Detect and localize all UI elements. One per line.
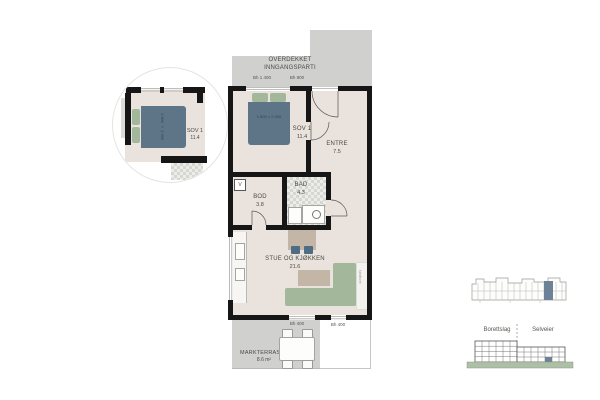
bed-size-label: 1 600 × 2 000 xyxy=(248,114,290,119)
floorplan-canvas: OVERDEKKET INNGANGSPARTI Bh 1 400 Bh 800… xyxy=(0,0,600,400)
sofa-chaise xyxy=(333,263,356,306)
bathroom-toilet xyxy=(288,207,302,224)
detail-room-name: SOV 1 xyxy=(175,128,215,135)
wall-sov1-bottom xyxy=(228,172,331,177)
covered-entrance-label: OVERDEKKET INNGANGSPARTI xyxy=(240,57,340,73)
sill-height-label-entrance-left: Bh 1 400 xyxy=(244,75,280,80)
bed-pillow xyxy=(270,93,286,102)
wall xyxy=(197,87,203,103)
covered-entrance-line2: INNGANGSPARTI xyxy=(240,65,340,73)
bad-name: BAD xyxy=(286,182,316,190)
bathroom-washer xyxy=(302,205,325,224)
elevation-unit-highlight xyxy=(545,357,552,362)
entre-name: ENTRE xyxy=(317,141,357,149)
bod-name: BOD xyxy=(242,194,278,202)
site-plan-unit-highlight xyxy=(544,281,553,300)
stue-area: 21.6 xyxy=(255,264,335,271)
wall xyxy=(346,315,372,320)
detail-tiles xyxy=(171,163,203,180)
neighbor-terrace-outline xyxy=(320,320,371,369)
wall xyxy=(228,315,289,320)
wall-bad-entre xyxy=(326,177,331,200)
vent-unit: V xyxy=(234,179,246,191)
coffee-table xyxy=(298,270,330,286)
room-label-entre: ENTRE 7.5 xyxy=(317,141,357,156)
dining-chair xyxy=(291,246,300,254)
wall xyxy=(125,93,131,145)
detail-room-area: 11.4 xyxy=(175,135,215,142)
washer-drum-icon xyxy=(312,210,321,219)
room-label-sov1: SOV 1 11.4 xyxy=(282,126,322,141)
outdoor-chair xyxy=(302,360,313,369)
outdoor-chair xyxy=(282,360,293,369)
section-label-borettslag: Borettslag xyxy=(475,327,519,333)
wall xyxy=(367,86,372,320)
wall-sov1-entre xyxy=(306,91,311,122)
dining-chair xyxy=(304,246,313,254)
detail-bed: 1 600 × 2 000 xyxy=(141,106,186,148)
site-plan-mini xyxy=(470,272,570,306)
sill-height-label-terrace-right: Bh 400 xyxy=(324,322,352,327)
wall-note-vertical: Nedforet xyxy=(358,270,362,306)
kitchen-sink xyxy=(235,243,245,260)
wall xyxy=(228,86,233,237)
room-label-bad: BAD 4.3 xyxy=(286,182,316,197)
entre-area: 7.5 xyxy=(317,149,357,156)
bed-pillow xyxy=(252,93,268,102)
wall xyxy=(161,156,207,163)
stue-name: STUE OG KJØKKEN xyxy=(255,256,335,264)
sov1-area: 11.4 xyxy=(282,134,322,141)
wall xyxy=(315,315,331,320)
wall-stue-top xyxy=(266,225,331,230)
wall-stue-top xyxy=(228,225,252,230)
bed-pillow xyxy=(132,127,140,143)
bed-pillow xyxy=(132,109,140,125)
sov1-name: SOV 1 xyxy=(282,126,322,134)
covered-entrance-line1: OVERDEKKET xyxy=(240,57,340,65)
ground-strip xyxy=(467,362,573,368)
kitchen-cooktop xyxy=(235,268,245,281)
bod-area: 3.8 xyxy=(242,202,278,209)
detail-bed-size-label: 1 600 × 2 000 xyxy=(160,113,165,141)
sill-height-label-terrace-left: Bh 400 xyxy=(283,321,311,326)
outdoor-table xyxy=(279,337,315,361)
room-label-bod: BOD 3.8 xyxy=(242,194,278,209)
section-label-selveier: Selveier xyxy=(521,327,565,333)
sill-height-label-entrance-right: Bh 800 xyxy=(282,75,312,80)
detail-room-label: SOV 1 11.4 xyxy=(175,128,215,142)
wall xyxy=(160,87,164,93)
detail-circle: 1 600 × 2 000 SOV 1 11.4 xyxy=(113,68,227,182)
bad-area: 4.3 xyxy=(286,190,316,197)
room-label-stue: STUE OG KJØKKEN 21.6 xyxy=(255,256,335,271)
